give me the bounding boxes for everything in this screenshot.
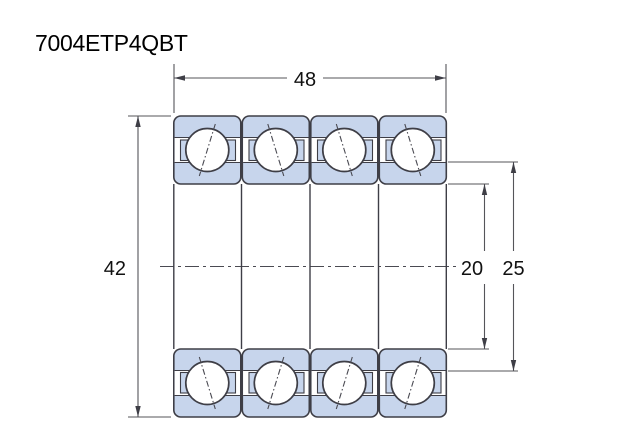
bearing-2-top-section [242,116,309,184]
dim-label-bore: 20 [461,258,483,280]
bearing-technical-drawing: 7004ETP4QBT [0,0,640,440]
bearing-3-bottom-section [311,349,378,417]
bearing-3-top-section [311,116,378,184]
dim-label-shoulder: 25 [502,258,524,280]
dimension-width-48: 48 [174,64,446,113]
bearing-2-bottom-section [242,349,309,417]
drawing-canvas: 7004ETP4QBT [0,0,640,440]
dim-label-width: 48 [294,69,316,91]
drawing-title: 7004ETP4QBT [35,30,188,56]
bearing-4-bottom-section [379,349,446,417]
bearing-4-top-section [379,116,446,184]
bearing-1-bottom-section [174,349,241,417]
bearing-1-top-section [174,116,241,184]
dim-label-od: 42 [104,258,126,280]
